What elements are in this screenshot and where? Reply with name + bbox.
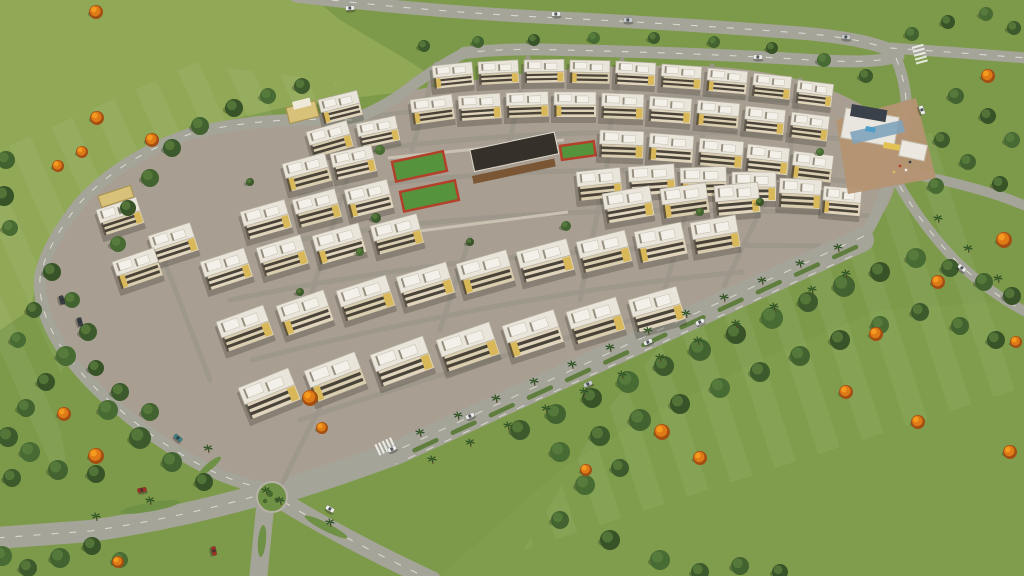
scene-svg — [0, 0, 1024, 576]
tree-highlight — [672, 396, 683, 407]
flowering-tree-highlight — [1012, 338, 1017, 343]
tree-highlight — [143, 170, 153, 180]
flowering-tree-highlight — [318, 424, 323, 429]
car — [551, 12, 561, 19]
tree-highlight — [473, 37, 480, 44]
tree-highlight — [357, 249, 361, 253]
flowering-tree-highlight — [983, 71, 989, 77]
tree-highlight — [197, 474, 207, 484]
apartment-building — [521, 59, 564, 89]
tree-highlight — [693, 564, 703, 574]
shrub — [267, 491, 273, 497]
tree-highlight — [165, 140, 175, 150]
tree-highlight — [66, 293, 75, 302]
apartment-building — [785, 112, 829, 148]
flowering-tree-highlight — [78, 148, 83, 153]
apartment-building — [429, 62, 475, 95]
car — [624, 18, 634, 25]
tree-highlight — [100, 402, 111, 413]
apartment-building — [702, 68, 747, 101]
apartment-building — [645, 133, 694, 169]
tree-highlight — [818, 54, 826, 62]
apartment-building — [596, 130, 644, 165]
flowering-tree-highlight — [91, 7, 97, 13]
tree-highlight — [85, 538, 95, 548]
tree-highlight — [5, 470, 15, 480]
tree-highlight — [994, 177, 1003, 186]
flowering-tree-highlight — [114, 558, 119, 563]
apartment-building — [551, 92, 596, 123]
tree-highlight — [913, 304, 923, 314]
tree-highlight — [1008, 22, 1016, 30]
tree-highlight — [691, 341, 703, 353]
flowering-tree-highlight — [54, 162, 59, 167]
tree-highlight — [90, 361, 99, 370]
tree-highlight — [982, 109, 991, 118]
tree-highlight — [817, 149, 821, 153]
lawn-court — [560, 141, 596, 160]
tree-highlight — [577, 477, 588, 488]
tree-highlight — [0, 429, 11, 440]
tree-highlight — [1005, 288, 1015, 298]
tree-highlight — [19, 400, 29, 410]
flowering-tree-highlight — [59, 409, 65, 415]
tree-highlight — [552, 444, 563, 455]
flowering-tree-highlight — [92, 113, 98, 119]
apartment-building — [711, 182, 761, 222]
tree-highlight — [832, 332, 843, 343]
tree-highlight — [873, 317, 883, 327]
person — [893, 171, 896, 174]
flowering-tree-highlight — [695, 453, 701, 459]
tree-highlight — [709, 37, 716, 44]
tree-highlight — [989, 332, 999, 342]
tree-highlight — [297, 289, 301, 293]
tree-highlight — [835, 277, 847, 289]
tree-highlight — [262, 89, 271, 98]
flowering-tree-highlight — [90, 450, 96, 456]
tree-highlight — [50, 462, 61, 473]
tree-highlight — [143, 404, 153, 414]
tree-highlight — [131, 429, 143, 441]
tree-highlight — [548, 406, 559, 417]
tree-highlight — [752, 364, 763, 375]
apartment-building — [657, 183, 711, 225]
apartment-building — [566, 60, 609, 90]
tree-highlight — [950, 89, 959, 98]
tree-highlight — [553, 512, 563, 522]
person — [905, 169, 908, 172]
apartment-building — [611, 61, 655, 92]
tree-highlight — [512, 422, 523, 433]
flowering-tree-highlight — [656, 426, 662, 432]
tree-highlight — [21, 560, 31, 570]
tree-highlight — [757, 199, 761, 203]
apartment-building — [692, 100, 740, 135]
tree-highlight — [419, 41, 426, 48]
flowering-tree-highlight — [841, 387, 847, 393]
tree-highlight — [113, 384, 123, 394]
person — [899, 165, 902, 168]
apartment-building — [740, 106, 786, 141]
apartment-building — [775, 178, 822, 215]
apartment-building — [503, 92, 549, 125]
tree-highlight — [12, 333, 21, 342]
tree-highlight — [376, 146, 382, 152]
tree-highlight — [872, 264, 883, 275]
tree-highlight — [4, 221, 13, 230]
apartment-building — [657, 64, 702, 96]
tree-highlight — [602, 532, 613, 543]
tree-highlight — [631, 411, 643, 423]
roundabout-island — [257, 482, 287, 512]
person — [909, 161, 912, 164]
apartment-building — [598, 93, 644, 126]
flowering-tree-highlight — [871, 329, 877, 335]
tree-highlight — [942, 16, 950, 24]
flowering-tree-highlight — [913, 417, 919, 423]
tree-highlight — [296, 79, 305, 88]
flowering-tree-highlight — [147, 135, 153, 141]
car — [753, 55, 763, 62]
tree-highlight — [58, 348, 69, 359]
tree-highlight — [227, 100, 237, 110]
tree-highlight — [592, 428, 603, 439]
tree-highlight — [562, 222, 568, 228]
tree-highlight — [930, 179, 939, 188]
tree-highlight — [767, 43, 774, 50]
tree-highlight — [792, 348, 803, 359]
tree-highlight — [943, 260, 953, 270]
tree-highlight — [122, 201, 131, 210]
tree-highlight — [936, 133, 945, 142]
tree-highlight — [89, 466, 99, 476]
tree-highlight — [733, 558, 743, 568]
tree-highlight — [649, 33, 656, 40]
tree-highlight — [860, 70, 868, 78]
tree-highlight — [52, 550, 63, 561]
tree-highlight — [467, 239, 471, 243]
tree-highlight — [39, 374, 49, 384]
tree-highlight — [164, 454, 175, 465]
tree-highlight — [712, 380, 723, 391]
apartment-building — [748, 73, 792, 106]
tree-highlight — [774, 565, 783, 574]
flowering-tree-highlight — [582, 466, 587, 471]
flowering-tree-highlight — [304, 392, 310, 398]
tree-highlight — [193, 118, 203, 128]
tree-highlight — [962, 155, 971, 164]
flowering-tree-highlight — [1005, 447, 1011, 453]
tree-highlight — [980, 8, 988, 16]
tree-highlight — [45, 264, 55, 274]
tree-highlight — [247, 179, 251, 183]
tree-highlight — [953, 318, 963, 328]
tree-highlight — [1006, 133, 1015, 142]
tree-highlight — [800, 294, 811, 305]
car — [345, 5, 355, 12]
shrub — [263, 499, 267, 503]
apartment-building — [407, 94, 456, 131]
flowering-tree-highlight — [933, 277, 939, 283]
tree-highlight — [977, 274, 987, 284]
tree-highlight — [28, 303, 37, 312]
tree-highlight — [372, 214, 378, 220]
aerial-render-image — [0, 0, 1024, 576]
tree-highlight — [112, 237, 121, 246]
tree-highlight — [763, 309, 775, 321]
tree-highlight — [697, 209, 701, 213]
apartment-building — [791, 80, 833, 114]
tree-highlight — [652, 552, 663, 563]
tree-highlight — [22, 444, 33, 455]
tree-highlight — [589, 33, 596, 40]
flowering-tree-highlight — [998, 234, 1004, 240]
tree-highlight — [906, 28, 914, 36]
tree-highlight — [908, 250, 919, 261]
tree-highlight — [613, 460, 623, 470]
apartment-building — [645, 96, 692, 130]
apartment-building — [455, 93, 502, 127]
tree-highlight — [529, 35, 536, 42]
apartment-building — [475, 60, 519, 91]
